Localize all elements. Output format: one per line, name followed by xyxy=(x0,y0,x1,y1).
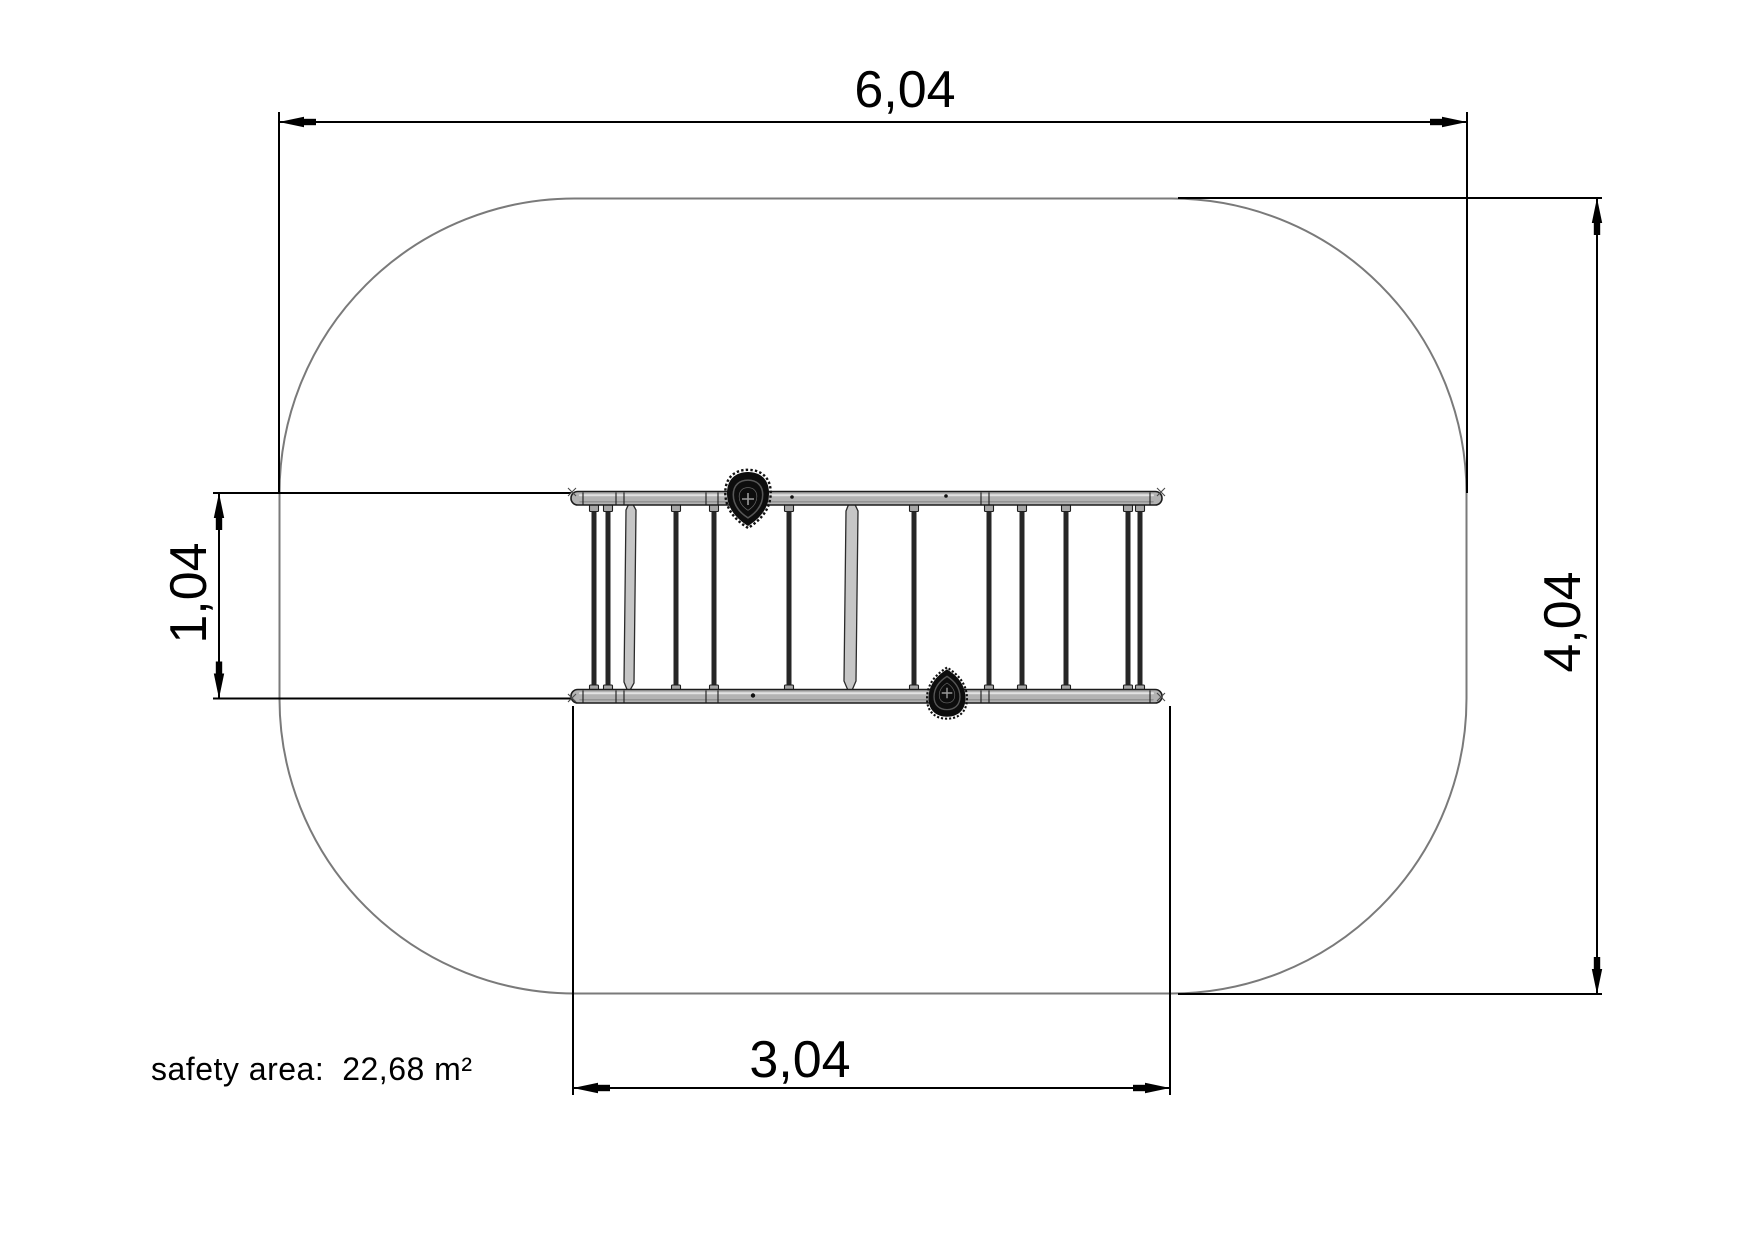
rung-fittings xyxy=(590,503,1145,695)
arrow-up-icon xyxy=(214,493,224,518)
hand-grip-bottom-icon xyxy=(927,667,967,718)
arrow-up-icon xyxy=(1592,198,1602,223)
rung xyxy=(712,504,717,692)
rung xyxy=(674,504,679,692)
rung xyxy=(1138,504,1143,692)
rung xyxy=(1126,504,1131,692)
rung xyxy=(1064,504,1069,692)
rung xyxy=(912,504,917,692)
dimension-left xyxy=(213,493,571,699)
safety-area-outline xyxy=(280,199,1467,994)
rung xyxy=(987,504,992,692)
arrow-down-icon xyxy=(1592,969,1602,994)
rung xyxy=(787,504,792,692)
equipment-plan-view xyxy=(568,470,1165,719)
rail-bottom xyxy=(571,690,1162,704)
technical-drawing-canvas: 6,04 4,04 1,04 3,04 safety area:22,68 m² xyxy=(0,0,1753,1240)
ladder-slats xyxy=(624,497,858,695)
arrow-right-icon xyxy=(1145,1083,1170,1093)
arrow-left-icon xyxy=(279,117,304,127)
safety-area-note: safety area:22,68 m² xyxy=(151,1051,472,1088)
dimension-top xyxy=(279,112,1467,493)
rung xyxy=(606,504,611,692)
slat-center xyxy=(844,497,858,695)
rung xyxy=(1020,504,1025,692)
arrow-left-icon xyxy=(573,1083,598,1093)
rail-top xyxy=(571,492,1162,506)
dimension-top-label: 6,04 xyxy=(854,60,955,120)
dimension-bottom-label: 3,04 xyxy=(749,1030,850,1090)
arrow-right-icon xyxy=(1442,117,1467,127)
dimension-left-label: 1,04 xyxy=(159,542,219,643)
dimension-bottom xyxy=(573,706,1170,1095)
safety-area-note-label: safety area: xyxy=(151,1051,324,1087)
safety-area-note-value: 22,68 m² xyxy=(342,1051,472,1087)
ladder-rungs xyxy=(590,503,1145,695)
vertex-markers xyxy=(568,488,1165,702)
ladder-rails xyxy=(571,492,1162,704)
dimension-right-label: 4,04 xyxy=(1533,571,1593,672)
arrow-down-icon xyxy=(214,674,224,699)
slat-left xyxy=(624,500,636,693)
hand-grip-top-icon xyxy=(725,470,770,528)
rung xyxy=(592,504,597,692)
